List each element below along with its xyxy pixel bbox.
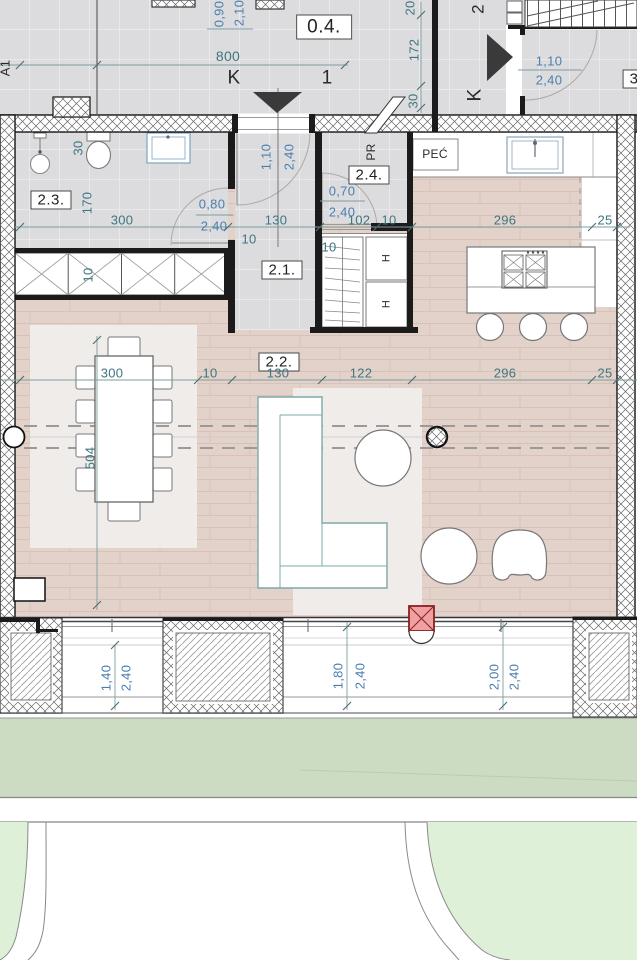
pier-right	[573, 617, 637, 717]
room-label-2-4: 2.4.	[348, 166, 389, 185]
neighbor-unit-floor	[525, 27, 637, 115]
chair	[76, 400, 95, 423]
fixture-h-bottom: H	[382, 300, 393, 308]
wardrobe-band	[15, 248, 229, 300]
dim-win2-h: 2,40	[354, 663, 367, 690]
landing-door-panel	[507, 13, 522, 24]
axis-col-1: 1	[322, 69, 333, 88]
dim-win1-h: 2,40	[120, 665, 133, 692]
room-label-0-4: 0.4.	[296, 15, 352, 40]
dim-v30: 30	[407, 93, 420, 108]
dim-row2-a: 300	[101, 367, 124, 380]
dim-wc-niche: 30	[72, 140, 85, 155]
exterior-wall-right	[617, 115, 635, 618]
chair	[76, 468, 95, 491]
dim-row2-c: 130	[267, 367, 290, 380]
room-label-2-3: 2.3.	[30, 191, 71, 210]
dim-win2-w: 1,80	[332, 663, 345, 690]
lawn-strip	[0, 718, 637, 798]
dim-v172: 172	[408, 39, 421, 62]
dim-row2-e: 296	[494, 367, 517, 380]
garden-patch-right	[427, 822, 637, 960]
dim-row1-f: 25	[597, 214, 612, 227]
landing-door-panel	[507, 1, 522, 12]
axis-k-right: K	[466, 89, 485, 102]
dim-win1-w: 1,40	[100, 665, 113, 692]
wall-column-circle	[4, 427, 25, 448]
room-label-2-1: 2.1.	[261, 261, 302, 280]
chair	[108, 337, 140, 357]
dim-row2-f: 25	[597, 367, 612, 380]
dim-store-door-w: 0,70	[329, 185, 356, 198]
dim-entry-w: 1,10	[260, 144, 273, 171]
dim-band10: 10	[82, 267, 95, 282]
side-table	[421, 528, 477, 584]
dim-row1-d: 10	[381, 214, 396, 227]
dim-hall10: 10	[241, 233, 256, 246]
dim-v20: 20	[404, 0, 417, 15]
chair	[153, 434, 172, 457]
dim-row2-d: 122	[350, 367, 373, 380]
dim-win3-h: 2,40	[508, 664, 521, 691]
window-wall	[0, 618, 637, 714]
chair	[153, 366, 172, 389]
chair	[76, 366, 95, 389]
wall-notch	[14, 578, 45, 601]
dim-closet10: 10	[321, 241, 336, 254]
dim-row1-b: 130	[265, 214, 288, 227]
fixture-pr: PR	[365, 143, 377, 160]
stairs	[507, 0, 637, 27]
red-column	[409, 606, 434, 644]
pier-left	[0, 618, 62, 713]
dim-row2-b: 10	[202, 367, 217, 380]
dim-bath-depth: 170	[81, 192, 94, 215]
plan-canvas: A1 0,90 2,10 800 K 1 0.4. 20 172 30 2 K …	[0, 0, 637, 960]
dim-right-door-h: 2,40	[536, 74, 563, 87]
fixture-pec: PEĆ	[422, 148, 448, 160]
dim-top-span: 800	[216, 49, 240, 63]
bar-stool	[561, 314, 588, 341]
dim-row1-e: 296	[494, 214, 517, 227]
cooktop	[502, 251, 547, 288]
bar-stool	[520, 314, 547, 341]
axis-k-top: K	[228, 69, 241, 88]
axis-a1: A1	[0, 60, 12, 77]
chair	[153, 400, 172, 423]
kitchen-sink	[507, 137, 563, 173]
column-marker	[427, 427, 447, 447]
bar-stool	[477, 314, 504, 341]
fixture-h-top: H	[382, 254, 393, 262]
chair	[108, 501, 140, 521]
dim-entry-h: 2,40	[283, 144, 296, 171]
floor-plan-svg	[0, 0, 637, 960]
pier-middle	[163, 618, 283, 713]
bath-sink	[147, 133, 190, 163]
room-label-3: 3	[623, 70, 637, 89]
coffee-table	[355, 430, 411, 486]
chair	[153, 468, 172, 491]
entry-opening	[237, 114, 310, 134]
dim-row1-c: 102	[348, 214, 371, 227]
dim-bath-door-w: 0,80	[199, 198, 226, 211]
axis-col-2: 2	[470, 4, 487, 14]
dim-win3-w: 2,00	[488, 664, 501, 691]
dim-bath-door-h: 2,40	[201, 220, 228, 233]
toilet	[87, 132, 111, 169]
dim-top-door-w: 0,90	[213, 1, 226, 28]
landscape	[0, 718, 637, 960]
dim-row1-a: 300	[111, 214, 134, 227]
dim-room-depth: 504	[84, 447, 97, 470]
armchair	[492, 530, 546, 580]
dim-top-door-h: 2,10	[233, 0, 246, 26]
kitchen-island	[467, 247, 595, 341]
dim-right-door-w: 1,10	[536, 55, 563, 68]
